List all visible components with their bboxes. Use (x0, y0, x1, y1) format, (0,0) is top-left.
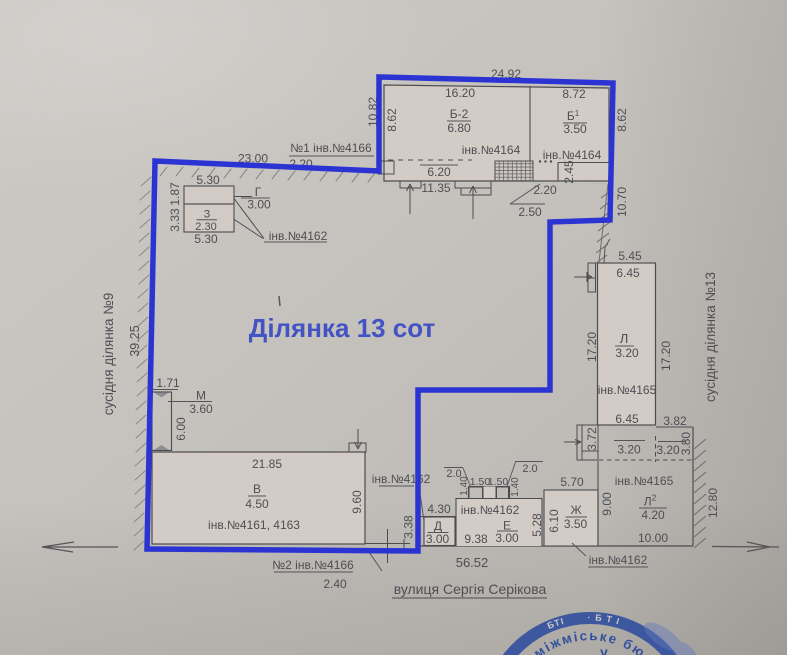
svg-text:17.20: 17.20 (585, 332, 599, 362)
svg-text:вулиця Сергія Серікова: вулиця Сергія Серікова (394, 581, 547, 597)
svg-text:56.52: 56.52 (456, 555, 489, 570)
svg-text:5.28: 5.28 (530, 513, 544, 537)
svg-text:3.38: 3.38 (402, 515, 416, 539)
svg-text:інв.№4162: інв.№4162 (269, 229, 328, 243)
svg-text:1.87: 1.87 (168, 182, 182, 206)
svg-text:8.62: 8.62 (385, 108, 399, 132)
svg-text:2.20: 2.20 (533, 183, 557, 197)
svg-text:2.45: 2.45 (562, 160, 576, 184)
svg-text:Ділянка 13 сот: Ділянка 13 сот (249, 313, 436, 343)
svg-text:1.40: 1.40 (459, 476, 470, 496)
svg-text:Д: Д (434, 519, 442, 533)
svg-text:інв.№4162: інв.№4162 (589, 553, 648, 567)
svg-text:1.40: 1.40 (510, 477, 521, 497)
svg-text:8.62: 8.62 (615, 108, 629, 132)
svg-text:3.20: 3.20 (615, 346, 639, 360)
svg-text:3.72: 3.72 (585, 427, 599, 451)
svg-text:Б-2: Б-2 (450, 107, 469, 121)
svg-text:у: у (600, 644, 608, 655)
svg-text:інв.№4162: інв.№4162 (461, 503, 520, 517)
svg-text:1.71: 1.71 (156, 376, 180, 390)
svg-text:2.40: 2.40 (323, 577, 347, 591)
svg-text:5.30: 5.30 (196, 173, 220, 187)
svg-text:4.50: 4.50 (245, 497, 269, 511)
svg-text:6.80: 6.80 (447, 121, 471, 135)
svg-text:3.33: 3.33 (168, 208, 182, 232)
svg-text:сусідня ділянка №9: сусідня ділянка №9 (101, 293, 116, 415)
svg-text:6.45: 6.45 (615, 412, 639, 426)
svg-text:12.80: 12.80 (706, 488, 720, 518)
svg-text:6.00: 6.00 (174, 417, 188, 441)
svg-text:10.00: 10.00 (638, 531, 668, 545)
svg-text:6.10: 6.10 (547, 509, 561, 533)
svg-text:5.70: 5.70 (560, 475, 584, 489)
svg-text:6.45: 6.45 (616, 266, 640, 280)
svg-text:5.45: 5.45 (618, 249, 642, 263)
svg-text:М: М (196, 389, 206, 403)
svg-text:З: З (204, 209, 211, 221)
svg-text:9.60: 9.60 (350, 490, 364, 514)
svg-text:9.38: 9.38 (464, 532, 488, 546)
svg-text:17.20: 17.20 (659, 341, 673, 371)
svg-text:10.70: 10.70 (615, 187, 629, 217)
svg-text:8.72: 8.72 (562, 87, 586, 101)
svg-text:39.25: 39.25 (128, 325, 142, 356)
svg-text:інв.№4161, 4163: інв.№4161, 4163 (208, 518, 300, 532)
svg-text:1.50: 1.50 (488, 476, 509, 488)
svg-text:3.20: 3.20 (617, 443, 641, 457)
svg-text:11.35: 11.35 (421, 181, 450, 195)
svg-text:3.60: 3.60 (189, 402, 213, 416)
svg-text:інв.№4165: інв.№4165 (598, 383, 657, 397)
svg-text:3.82: 3.82 (663, 414, 687, 428)
svg-text:3.00: 3.00 (426, 532, 450, 546)
svg-text:сусідня ділянка №13: сусідня ділянка №13 (703, 272, 718, 402)
svg-text:2.0: 2.0 (522, 463, 537, 475)
svg-text:3.00: 3.00 (495, 531, 519, 545)
svg-text:3.80: 3.80 (679, 432, 693, 456)
svg-text:4.20: 4.20 (641, 508, 665, 522)
svg-text:3.50: 3.50 (564, 517, 588, 531)
svg-text:В: В (253, 482, 261, 496)
svg-text:3.20: 3.20 (656, 443, 680, 457)
svg-text:№1 інв.№4166: №1 інв.№4166 (290, 141, 372, 155)
svg-text:5.30: 5.30 (194, 232, 218, 246)
svg-text:2.50: 2.50 (518, 205, 542, 219)
svg-text:6.20: 6.20 (427, 165, 451, 179)
svg-text:4.30: 4.30 (427, 502, 451, 516)
svg-text:9.00: 9.00 (600, 492, 614, 516)
svg-text:інв.№4162: інв.№4162 (372, 472, 431, 486)
svg-text:інв.№4164: інв.№4164 (543, 148, 602, 162)
svg-text:Л: Л (620, 331, 629, 346)
svg-text:№2 інв.№4166: №2 інв.№4166 (272, 558, 354, 572)
svg-text:16.20: 16.20 (445, 86, 475, 100)
svg-text:3.50: 3.50 (563, 122, 587, 136)
svg-text:3.00: 3.00 (247, 198, 271, 212)
svg-text:Ж: Ж (570, 503, 581, 517)
svg-text:21.85: 21.85 (252, 457, 282, 471)
svg-text:інв.№4165: інв.№4165 (615, 474, 674, 488)
svg-text:2.30: 2.30 (195, 221, 216, 233)
svg-text:інв.№4164: інв.№4164 (462, 143, 521, 157)
